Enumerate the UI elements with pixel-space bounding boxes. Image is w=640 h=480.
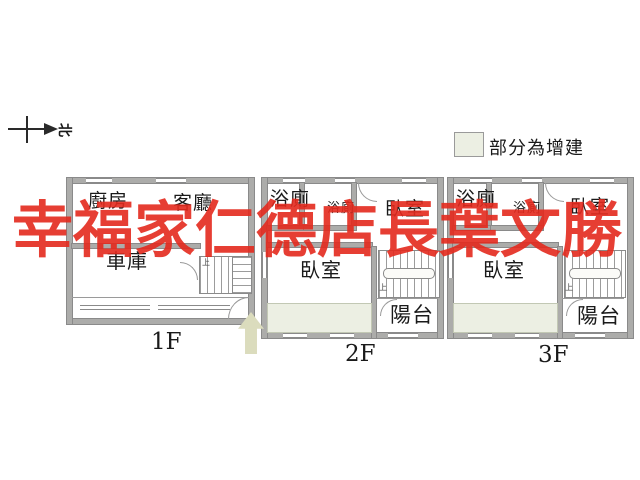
stair-handrail xyxy=(569,268,621,279)
garage-door xyxy=(158,305,230,310)
garage-door xyxy=(80,305,150,310)
window xyxy=(522,178,542,183)
legend-swatch xyxy=(454,132,484,157)
window xyxy=(156,178,186,183)
window xyxy=(335,178,355,183)
window xyxy=(388,333,418,338)
north-label: 北 xyxy=(55,123,75,137)
balcony-line xyxy=(562,298,624,299)
window xyxy=(283,333,307,338)
room-label-balcony: 陽台 xyxy=(577,306,621,327)
window xyxy=(402,178,426,183)
floor-label-2f: 2F xyxy=(345,343,376,366)
floor-label-1f: 1F xyxy=(151,331,182,354)
window xyxy=(590,178,614,183)
window xyxy=(575,333,605,338)
window xyxy=(470,178,492,183)
legend-label: 部分為增建 xyxy=(489,134,584,160)
stair-up-label: 上 xyxy=(565,284,574,292)
wall xyxy=(628,178,633,338)
window xyxy=(515,333,539,338)
window xyxy=(468,333,492,338)
balcony-line xyxy=(376,298,438,299)
door-arc xyxy=(228,297,249,319)
wall xyxy=(67,319,254,324)
addition-area xyxy=(453,303,558,333)
addition-area xyxy=(267,303,372,333)
watermark-text: 幸福家仁德店長葉文勝 xyxy=(12,200,622,261)
floor-label-3f: 3F xyxy=(538,344,569,367)
floorplan-image: 北 部分為增建 上 廚房 客廳 車庫 1F xyxy=(0,0,640,480)
room-label-balcony: 陽台 xyxy=(390,305,434,326)
stair-handrail xyxy=(383,268,435,279)
window xyxy=(330,333,354,338)
porch-line xyxy=(72,297,249,298)
stair-up-label: 上 xyxy=(379,284,388,292)
north-arrow-cross xyxy=(26,116,28,143)
window xyxy=(86,178,112,183)
window xyxy=(283,178,305,183)
